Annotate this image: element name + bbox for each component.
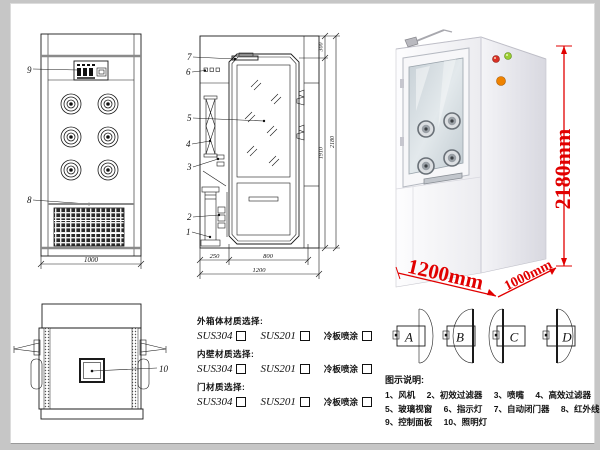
front-width-dimension: 1000 — [38, 256, 144, 269]
checkbox-outer-coldplate[interactable] — [362, 331, 372, 341]
parts-legend: 图示说明: 1、风机 2、初效过滤器 3、喷嘴 4、高效过滤器 5、玻璃视窗 6… — [385, 373, 593, 430]
inner-material-options: SUS304 SUS201 冷板喷涂 — [197, 363, 387, 375]
legend-item: 2、初效过滤器 — [427, 390, 483, 400]
side-callouts: 7 6 5 4 3 2 1 — [186, 52, 265, 238]
legend-row-3: 9、控制面板 10、照明灯 — [385, 416, 593, 430]
checkbox-outer-sus201[interactable] — [300, 331, 310, 341]
pedestal-and-filter — [201, 187, 227, 246]
checkbox-inner-coldplate[interactable] — [362, 364, 372, 374]
legend-item: 10、照明灯 — [444, 417, 487, 427]
legend-row-2: 5、玻璃视窗 6、指示灯 7、自动闭门器 8、红外线感应器 — [385, 403, 593, 417]
door-swing-options: A B C D — [387, 307, 597, 367]
legend-item: 9、控制面板 — [385, 417, 432, 427]
callout-7-label: 7 — [187, 52, 192, 62]
green-light — [505, 53, 512, 60]
checkbox-inner-sus304[interactable] — [236, 364, 246, 374]
door-hinge — [400, 137, 404, 146]
checkbox-inner-sus201[interactable] — [300, 364, 310, 374]
front-view-drawing: 9 8 — [21, 23, 176, 281]
side-view-drawing: 7 6 5 4 3 2 1 — [179, 29, 347, 291]
door-material-options: SUS304 SUS201 冷板喷涂 — [197, 396, 387, 408]
legend-title: 图示说明: — [385, 373, 593, 386]
dim-250: 250 — [210, 253, 221, 260]
door-material-title: 门材质选择: — [197, 381, 387, 393]
callout-6-label: 6 — [186, 67, 191, 77]
door-option-a-label: A — [404, 330, 413, 345]
option-label: SUS201 — [260, 396, 295, 408]
option-label: 冷板喷涂 — [324, 363, 358, 375]
dim-1910: 1910 — [319, 147, 325, 159]
checkbox-outer-sus304[interactable] — [236, 331, 246, 341]
door-option-b-icon: B — [437, 307, 485, 365]
dim-1200: 1200 — [253, 267, 267, 274]
callout-10: 10 — [91, 364, 169, 374]
top-view-outline — [39, 304, 143, 419]
inner-material-title: 内壁材质选择: — [197, 348, 387, 360]
option-label: 冷板喷涂 — [324, 330, 358, 342]
side-bottom-dimensions: 250 800 1200 — [197, 244, 322, 279]
callout-9: 9 — [27, 65, 79, 75]
legend-item: 3、喷嘴 — [494, 390, 524, 400]
legend-row-1: 1、风机 2、初效过滤器 3、喷嘴 4、高效过滤器 — [385, 389, 593, 403]
legend-item: 6、指示灯 — [444, 404, 483, 414]
option-label: 冷板喷涂 — [324, 396, 358, 408]
legend-item: 4、高效过滤器 — [535, 390, 591, 400]
spec-sheet: 9 8 — [0, 0, 600, 450]
legend-item: 8、红外线感应器 — [561, 404, 600, 414]
side-nozzles — [297, 90, 304, 140]
checkbox-door-coldplate[interactable] — [362, 397, 372, 407]
outer-material-title: 外箱体材质选择: — [197, 315, 387, 327]
material-selection: 外箱体材质选择: SUS304 SUS201 冷板喷涂 内壁材质选择: SUS3… — [197, 315, 387, 414]
control-panel — [74, 61, 108, 80]
photo-height-label: 2180mm — [550, 129, 575, 210]
dim-2180: 2180 — [330, 136, 336, 148]
door-option-b-label: B — [456, 330, 464, 345]
product-photo: 2180mm 1200mm 1000mm — [386, 19, 581, 311]
option-label: SUS304 — [197, 396, 232, 408]
front-width-value: 1000 — [84, 256, 99, 264]
nozzle-bracket — [203, 155, 226, 186]
dim-800: 800 — [263, 253, 274, 260]
callout-3-label: 3 — [186, 162, 192, 172]
air-return-grille — [48, 204, 134, 246]
glass-hatch — [245, 80, 281, 166]
orange-button — [497, 77, 506, 86]
door-option-c-icon: C — [487, 307, 535, 365]
option-label: SUS304 — [197, 330, 232, 342]
door-hinge — [400, 79, 404, 88]
checkbox-door-sus201[interactable] — [300, 397, 310, 407]
door-option-d-label: D — [561, 330, 572, 345]
callout-10-label: 10 — [159, 364, 169, 374]
callout-2-label: 2 — [187, 212, 192, 222]
option-label: SUS201 — [260, 363, 295, 375]
callout-9-label: 9 — [27, 65, 32, 75]
nozzles-front — [61, 94, 118, 180]
option-label: SUS201 — [260, 330, 295, 342]
legend-item: 7、自动闭门器 — [494, 404, 550, 414]
door-with-window — [229, 54, 299, 244]
fan-truss — [204, 96, 217, 157]
legend-item: 5、玻璃视窗 — [385, 404, 432, 414]
door-option-d-icon: D — [537, 307, 585, 365]
red-light — [493, 56, 500, 63]
callout-8-label: 8 — [27, 195, 32, 205]
side-vertical-dimensions: 300 1910 2180 — [299, 33, 340, 251]
drawing-sheet: 9 8 — [10, 3, 595, 444]
legend-item: 1、风机 — [385, 390, 415, 400]
callout-1-label: 1 — [186, 227, 191, 237]
checkbox-door-sus304[interactable] — [236, 397, 246, 407]
callout-5-label: 5 — [187, 113, 192, 123]
door-option-a-icon: A — [387, 307, 435, 365]
door-option-c-label: C — [510, 330, 519, 345]
outer-material-options: SUS304 SUS201 冷板喷涂 — [197, 330, 387, 342]
top-view-drawing: 10 — [11, 297, 191, 429]
dim-300: 300 — [319, 43, 325, 53]
callout-4-label: 4 — [186, 139, 191, 149]
indicator-dots — [204, 68, 220, 72]
option-label: SUS304 — [197, 363, 232, 375]
